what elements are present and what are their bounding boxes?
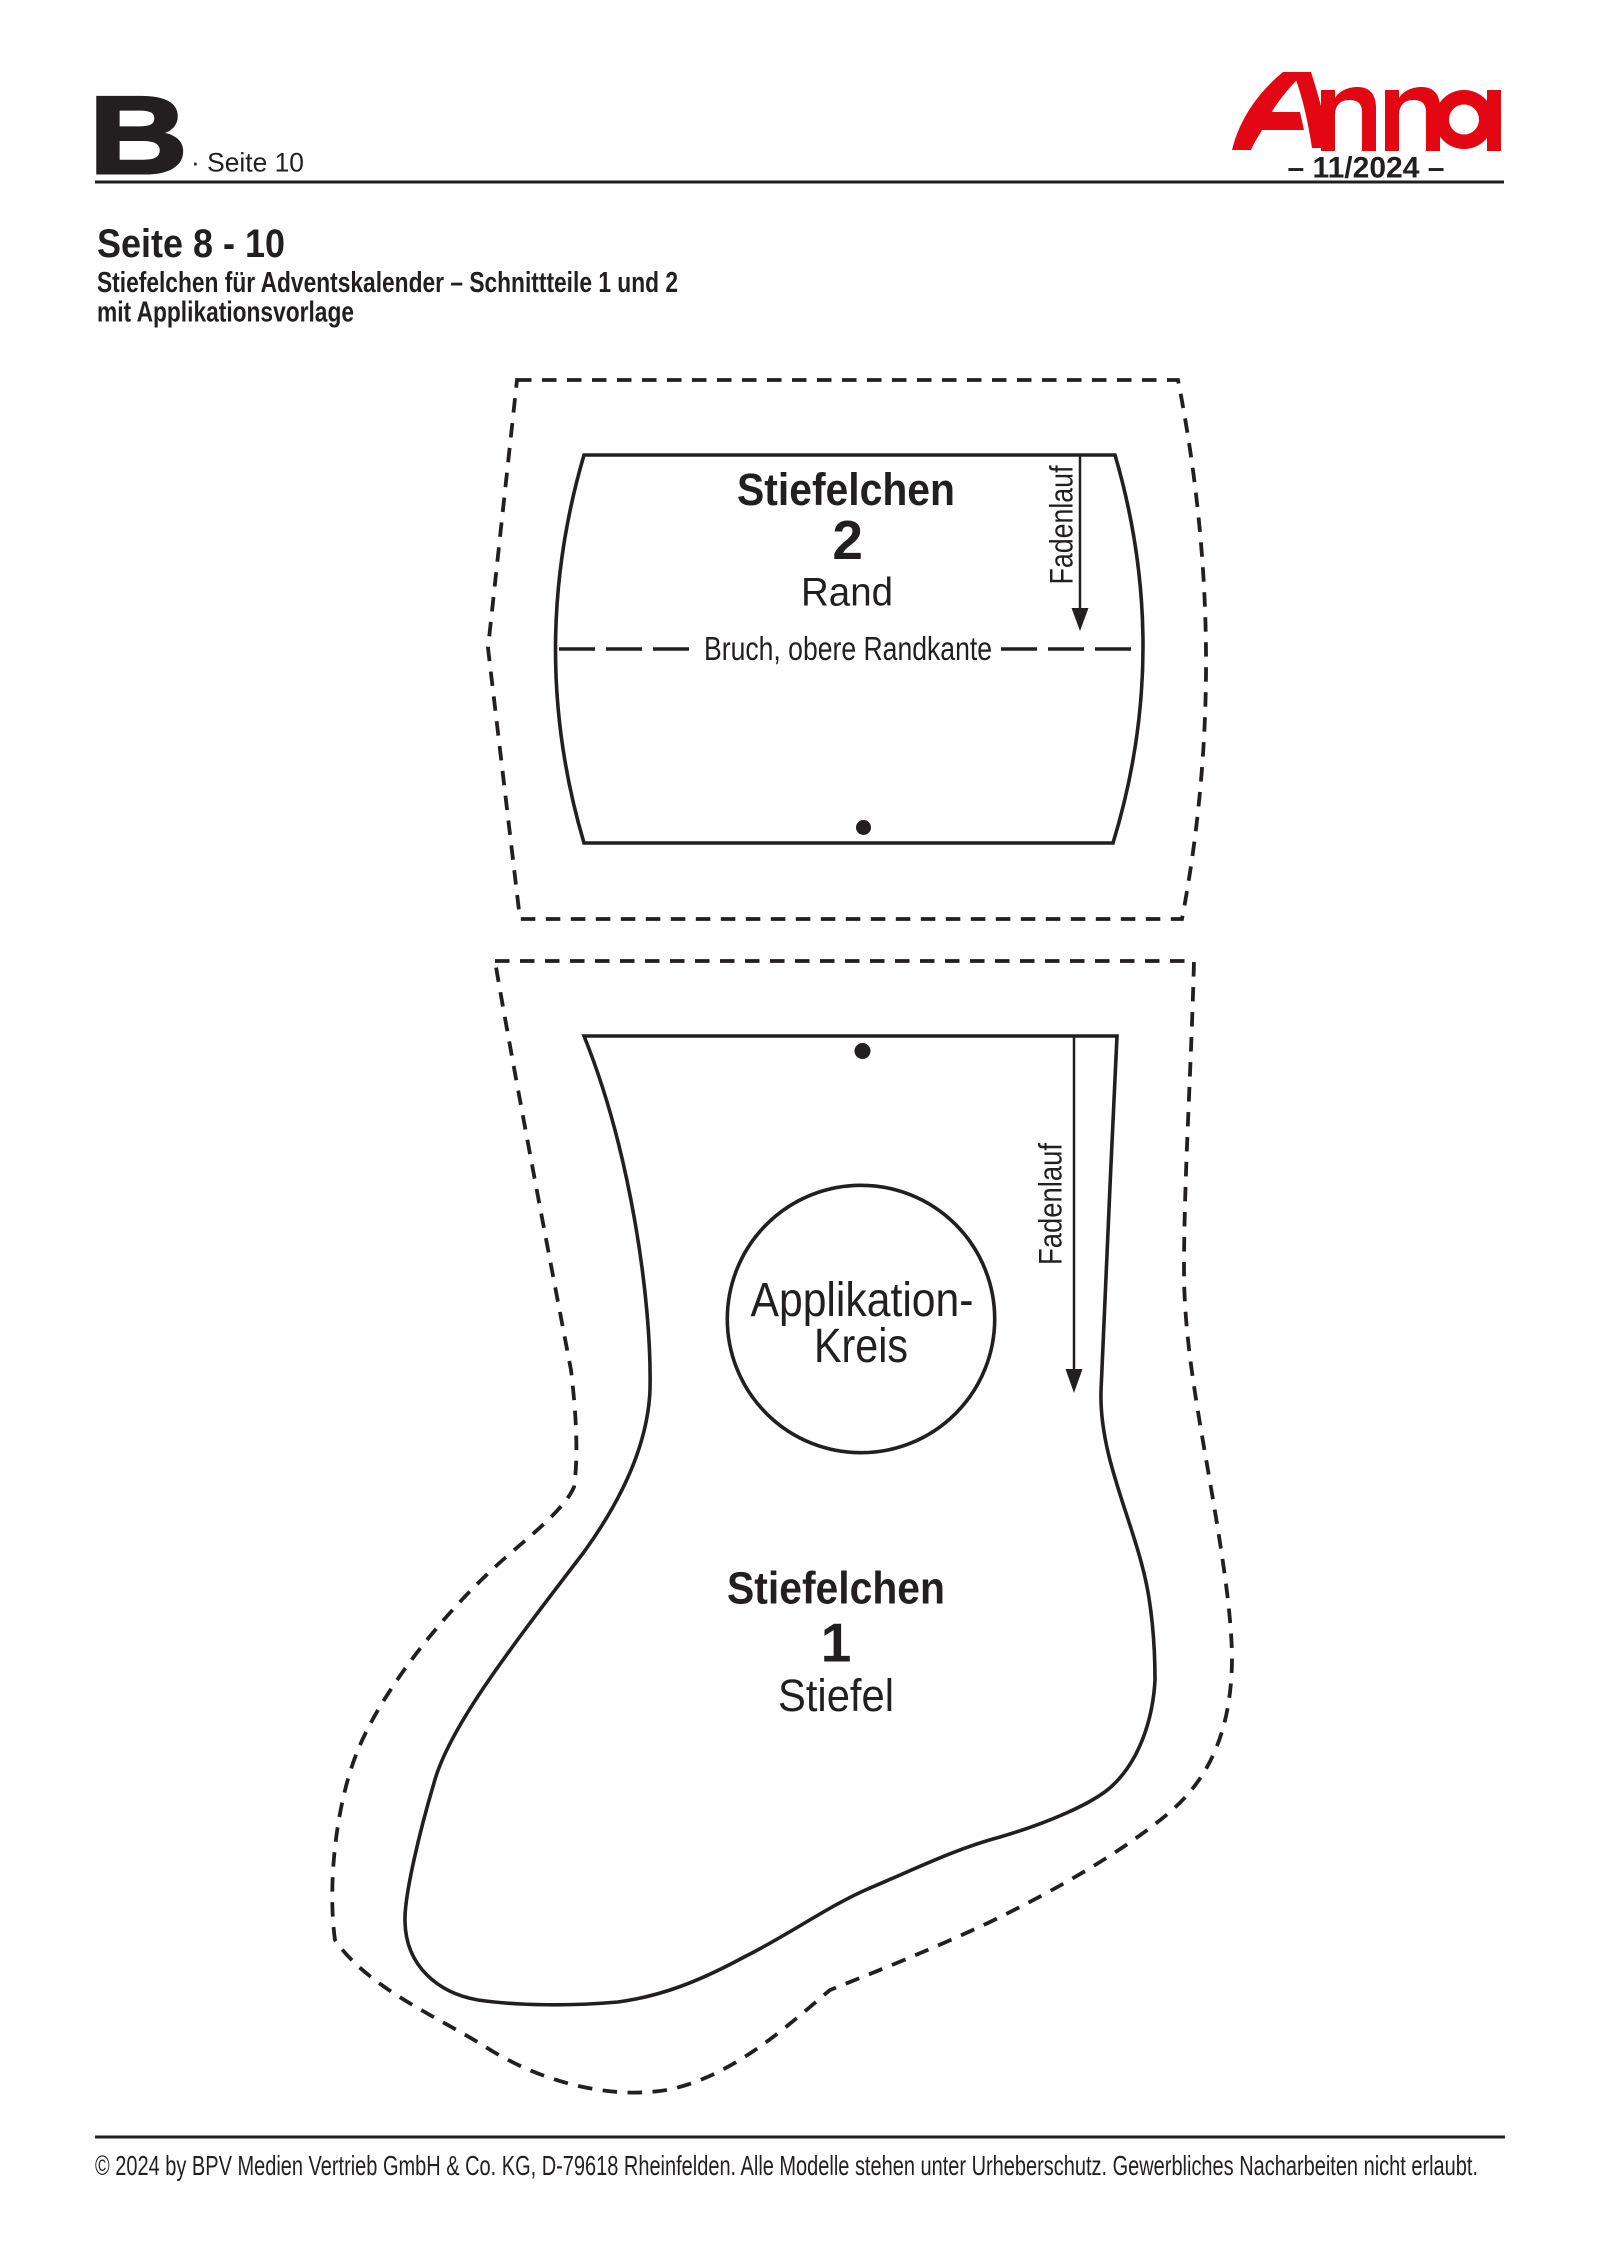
svg-text:Stiefel: Stiefel [778,1670,894,1721]
svg-text:· Seite 10: · Seite 10 [191,148,304,178]
svg-text:Bruch, obere Randkante: Bruch, obere Randkante [704,630,992,667]
svg-text:2: 2 [832,509,863,571]
svg-text:– 11/2024 –: – 11/2024 – [1288,152,1445,185]
svg-text:Fadenlauf: Fadenlauf [1033,1143,1069,1265]
svg-text:© 2024 by BPV Medien Vertrieb: © 2024 by BPV Medien Vertrieb GmbH & Co.… [95,2150,1478,2181]
svg-text:B: B [89,74,188,197]
svg-text:Stiefelchen für Adventskalende: Stiefelchen für Adventskalender – Schnit… [97,267,678,299]
svg-text:Stiefelchen: Stiefelchen [727,1563,945,1614]
svg-text:Seite 8 - 10: Seite 8 - 10 [97,222,285,266]
svg-text:Kreis: Kreis [814,1320,908,1373]
svg-text:Rand: Rand [801,571,893,615]
svg-text:1: 1 [821,1612,852,1674]
svg-text:mit Applikationsvorlage: mit Applikationsvorlage [97,297,354,329]
svg-text:Fadenlauf: Fadenlauf [1044,465,1080,584]
svg-text:Stiefelchen: Stiefelchen [737,464,955,515]
